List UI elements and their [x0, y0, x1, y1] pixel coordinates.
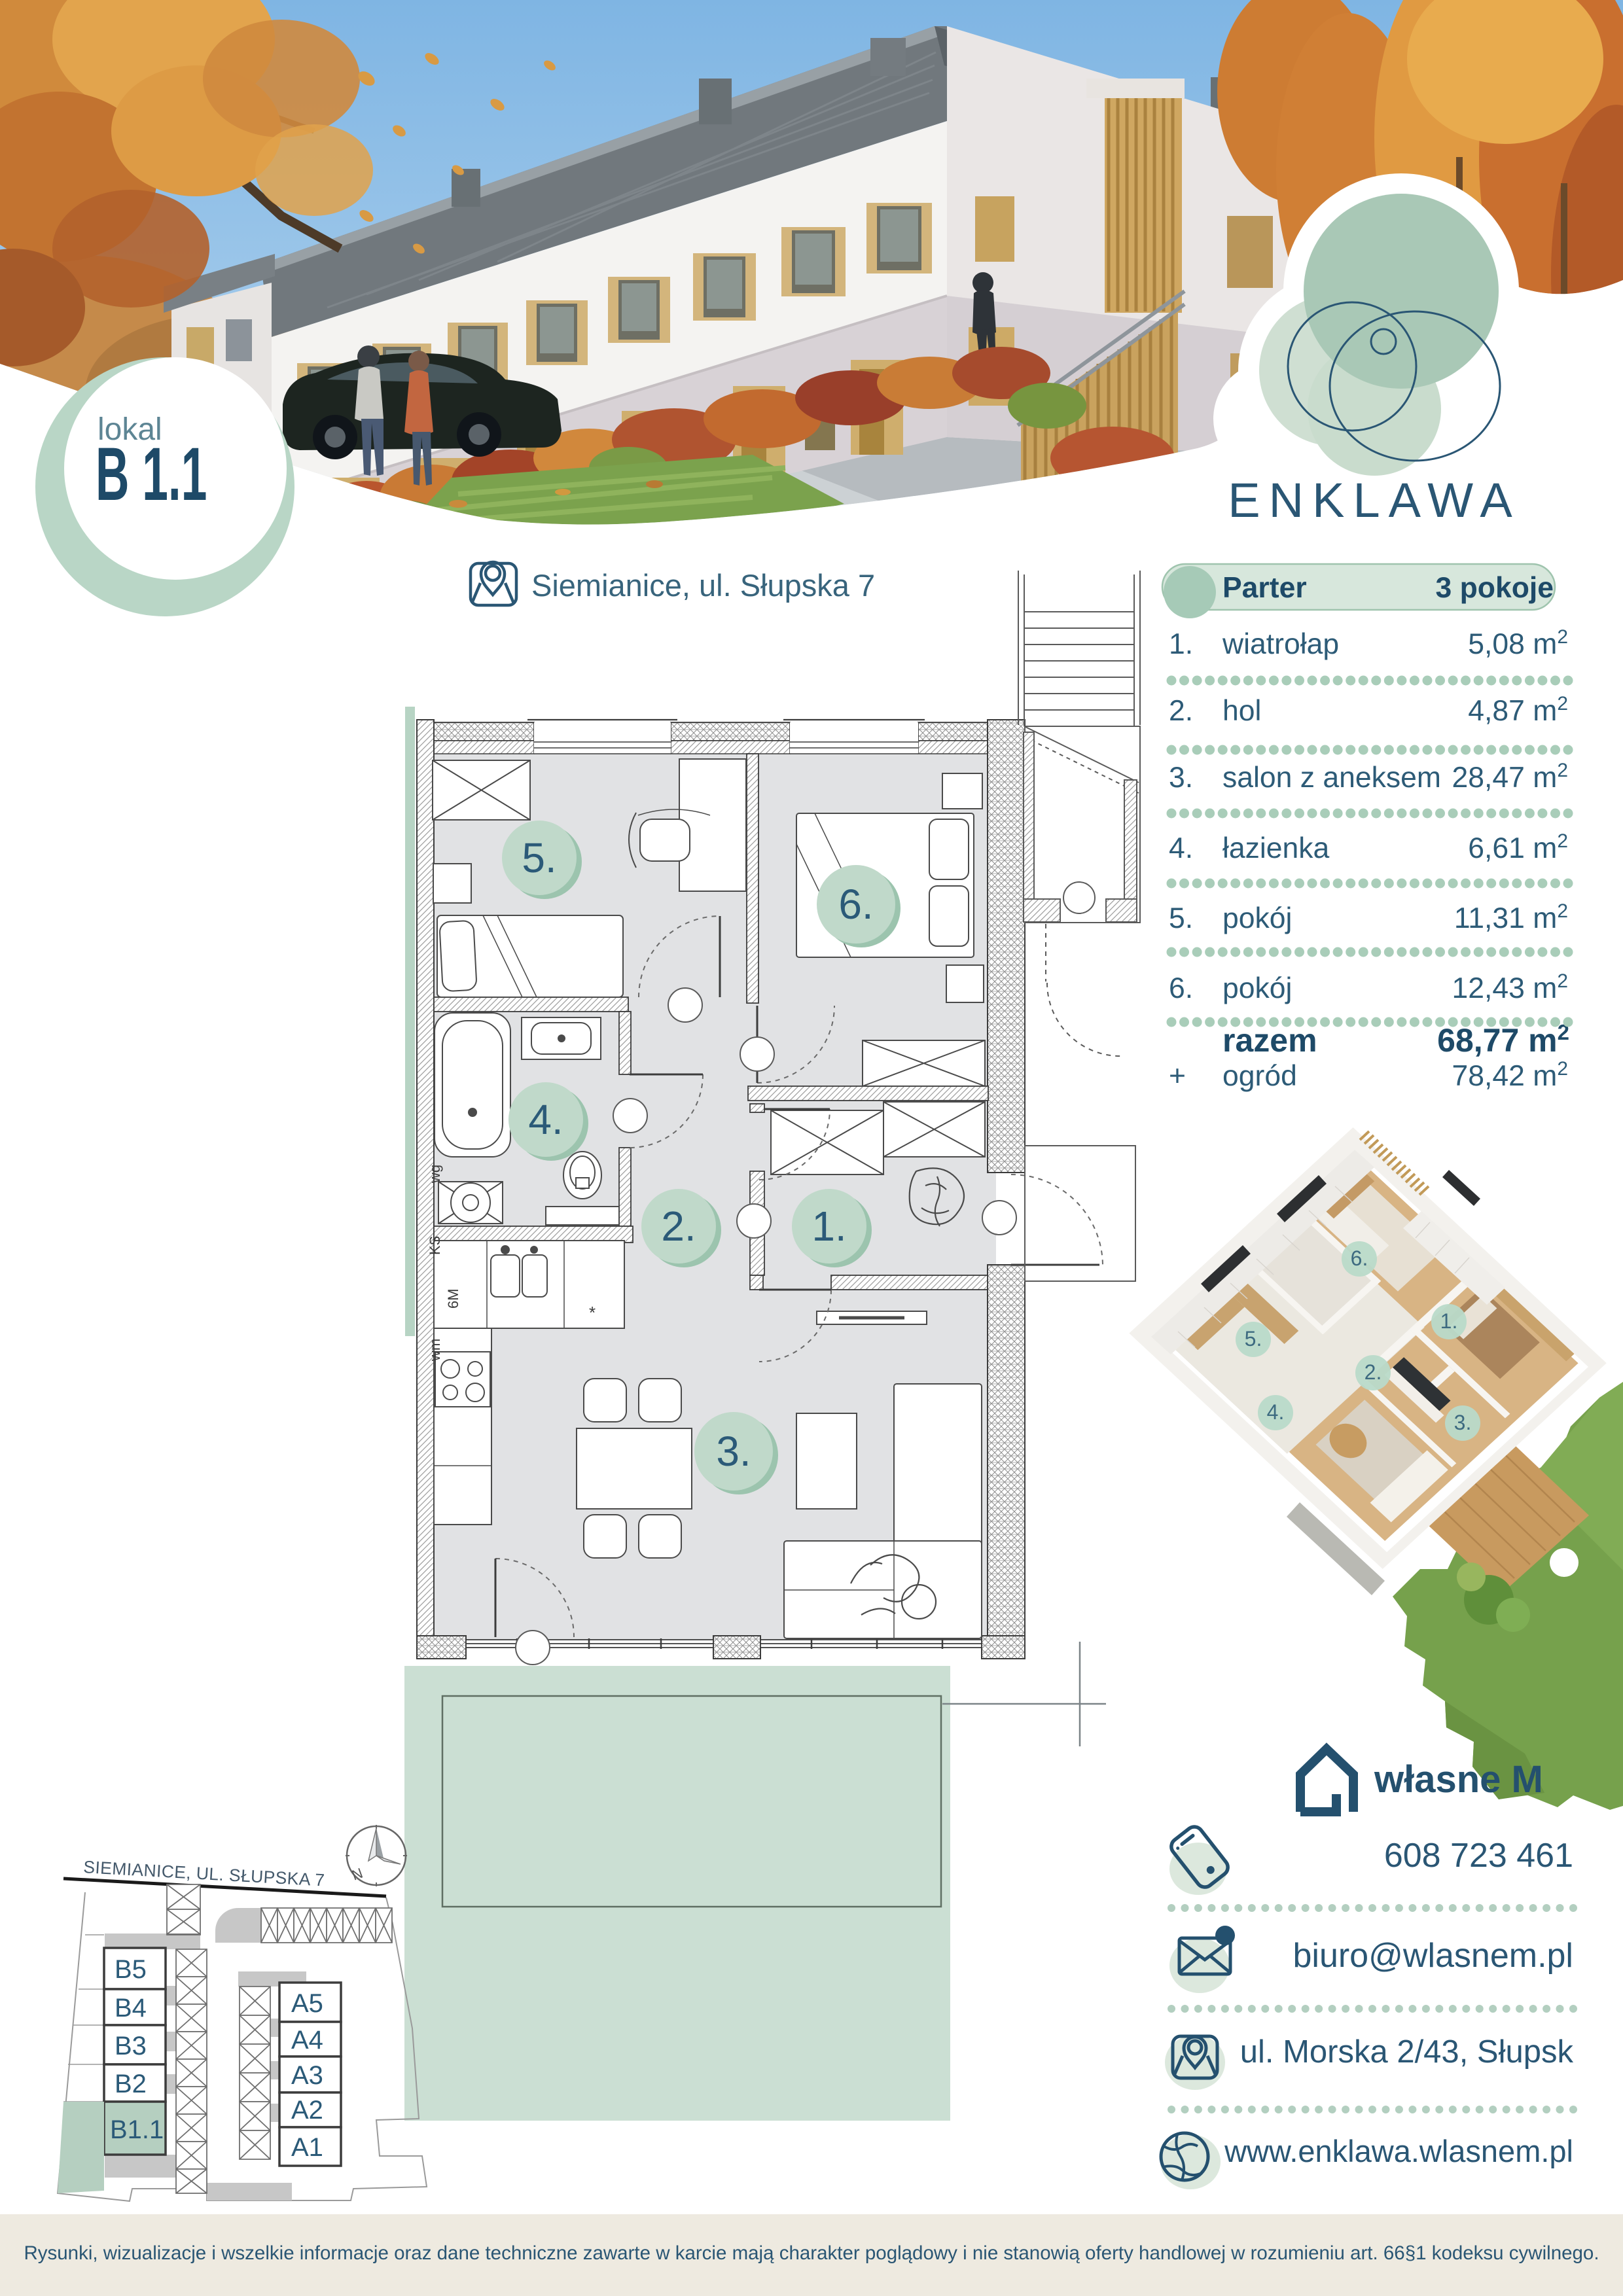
svg-text:11,31 m2: 11,31 m2	[1454, 900, 1568, 934]
svg-text:B4: B4	[115, 1994, 147, 2022]
svg-text:5.: 5.	[1169, 902, 1193, 934]
svg-text:salon z aneksem: salon z aneksem	[1222, 762, 1441, 794]
svg-text:4.: 4.	[528, 1096, 563, 1143]
svg-text:5,08 m2: 5,08 m2	[1468, 626, 1568, 660]
svg-text:2.: 2.	[1169, 695, 1193, 727]
svg-text:Parter: Parter	[1222, 572, 1307, 604]
svg-text:wg: wg	[427, 1165, 443, 1184]
svg-text:ul. Morska 2/43, Słupsk: ul. Morska 2/43, Słupsk	[1240, 2034, 1574, 2070]
svg-text:www.enklawa.wlasnem.pl: www.enklawa.wlasnem.pl	[1224, 2134, 1573, 2168]
svg-text:5.: 5.	[1245, 1327, 1262, 1351]
svg-text:3.: 3.	[1169, 762, 1193, 794]
svg-text:Siemianice, ul. Słupska 7: Siemianice, ul. Słupska 7	[531, 568, 875, 603]
svg-text:biuro@wlasnem.pl: biuro@wlasnem.pl	[1293, 1937, 1573, 1975]
svg-text:B3: B3	[115, 2032, 147, 2060]
svg-text:KS: KS	[427, 1236, 443, 1255]
svg-text:wm: wm	[427, 1339, 443, 1362]
svg-text:3 pokoje: 3 pokoje	[1435, 572, 1554, 604]
svg-text:B2: B2	[115, 2070, 147, 2098]
svg-text:A4: A4	[291, 2026, 323, 2055]
svg-text:A2: A2	[291, 2096, 323, 2125]
svg-text:78,42 m2: 78,42 m2	[1452, 1058, 1568, 1092]
svg-text:*: *	[589, 1303, 596, 1322]
svg-text:ogród: ogród	[1222, 1060, 1297, 1092]
svg-text:łazienka: łazienka	[1222, 832, 1330, 864]
svg-text:1.: 1.	[1169, 628, 1193, 660]
svg-text:2.: 2.	[1364, 1360, 1382, 1384]
svg-text:6.: 6.	[1351, 1246, 1368, 1270]
svg-text:4.: 4.	[1267, 1400, 1285, 1424]
svg-text:Rysunki, wizualizacje i wszelk: Rysunki, wizualizacje i wszelkie informa…	[24, 2242, 1599, 2264]
svg-text:razem: razem	[1222, 1022, 1317, 1059]
svg-text:4.: 4.	[1169, 832, 1193, 864]
svg-text:1.: 1.	[1440, 1309, 1458, 1333]
svg-text:hol: hol	[1222, 695, 1261, 727]
svg-text:pokój: pokój	[1222, 972, 1292, 1004]
svg-text:A5: A5	[291, 1989, 323, 2018]
svg-text:A3: A3	[291, 2061, 323, 2090]
svg-text:3.: 3.	[716, 1428, 751, 1475]
svg-text:6M: 6M	[445, 1288, 461, 1309]
svg-text:pokój: pokój	[1222, 902, 1292, 934]
svg-text:12,43 m2: 12,43 m2	[1452, 970, 1568, 1004]
svg-text:6.: 6.	[838, 881, 873, 928]
svg-text:+: +	[1169, 1060, 1186, 1092]
svg-text:B 1.1: B 1.1	[96, 433, 207, 517]
svg-text:28,47 m2: 28,47 m2	[1452, 760, 1568, 794]
svg-text:1.: 1.	[811, 1203, 846, 1250]
svg-text:608 723 461: 608 723 461	[1384, 1837, 1573, 1875]
svg-text:4,87 m2: 4,87 m2	[1468, 693, 1568, 727]
svg-text:B1.1: B1.1	[110, 2115, 164, 2144]
svg-text:6,61 m2: 6,61 m2	[1468, 830, 1568, 864]
svg-text:6.: 6.	[1169, 972, 1193, 1004]
svg-text:B5: B5	[115, 1955, 147, 1984]
svg-text:5.: 5.	[522, 834, 556, 881]
svg-text:własne M: własne M	[1374, 1758, 1543, 1801]
svg-text:A1: A1	[291, 2133, 323, 2162]
svg-text:ENKLAWA: ENKLAWA	[1228, 473, 1520, 527]
svg-text:2.: 2.	[661, 1203, 696, 1250]
svg-text:3.: 3.	[1454, 1411, 1472, 1434]
svg-text:wiatrołap: wiatrołap	[1222, 628, 1339, 660]
